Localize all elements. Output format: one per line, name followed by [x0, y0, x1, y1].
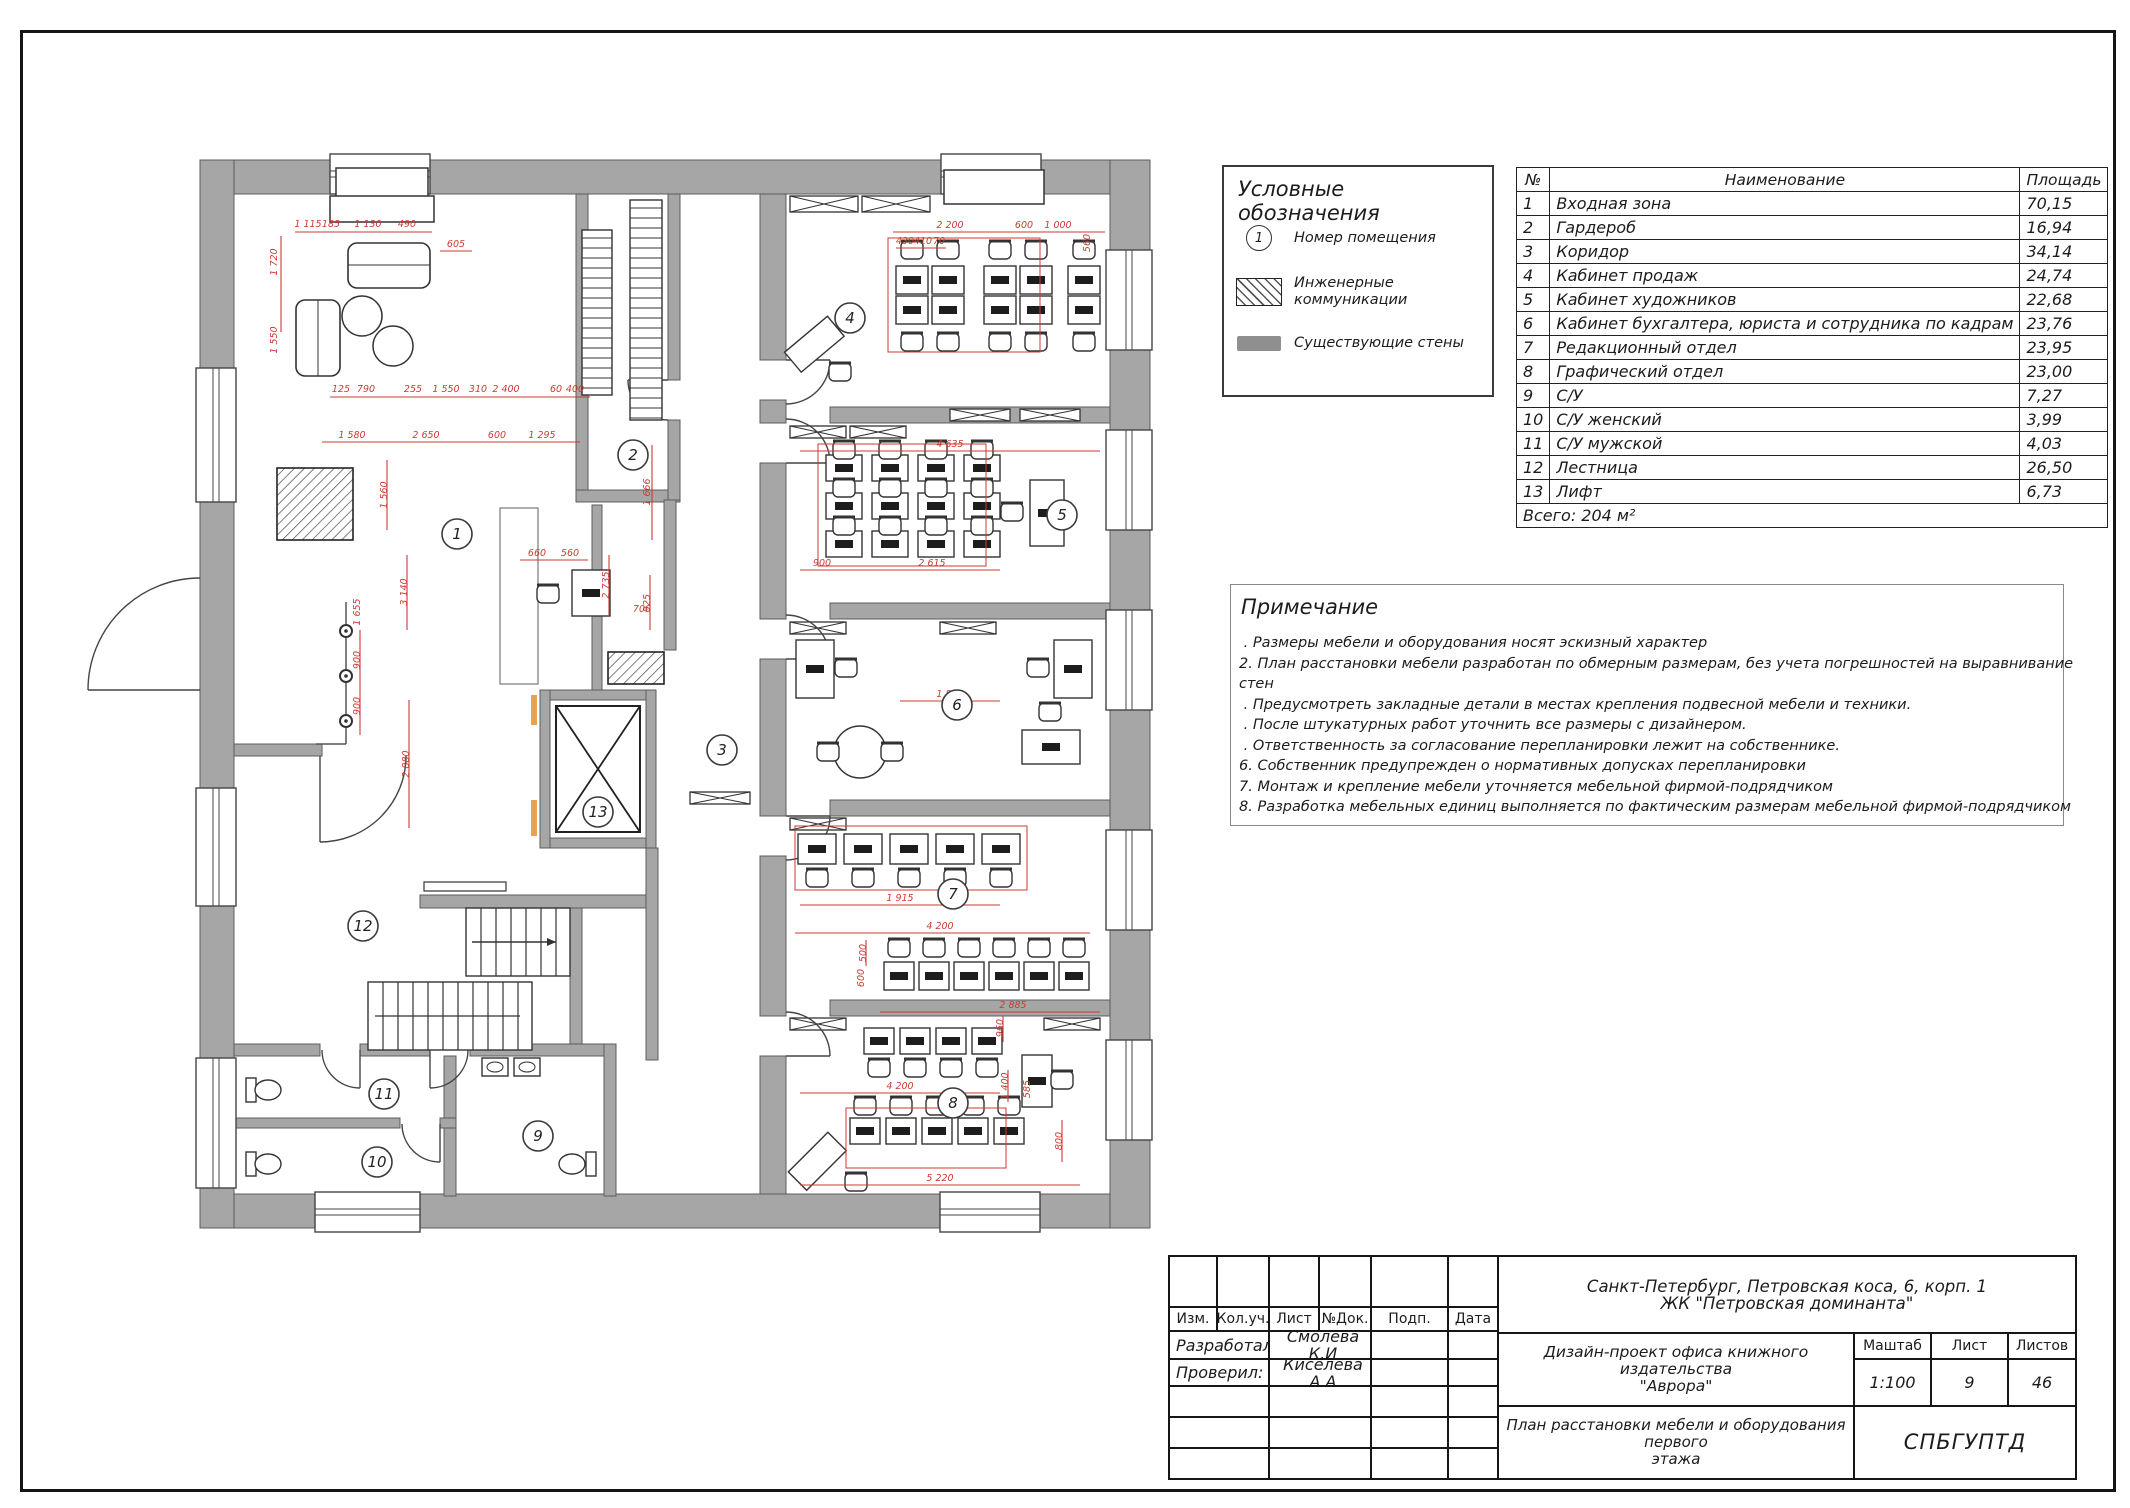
rooms-total: Всего: 204 м²	[1517, 504, 2108, 528]
table-row: 11С/У мужской4,03	[1517, 432, 2108, 456]
note-line: 7. Монтаж и крепление мебели уточняется …	[1239, 777, 2063, 798]
dimension-label: 490	[398, 219, 416, 230]
tb-blank	[1168, 1255, 1218, 1308]
dimension-label: 1 560	[379, 481, 390, 508]
table-row: 12Лестница26,50	[1517, 456, 2108, 480]
tb-checked-name: Киселева А.А	[1268, 1358, 1372, 1387]
svg-text:13: 13	[588, 803, 607, 821]
room-name: С/У	[1550, 384, 2020, 408]
room-name: Кабинет художников	[1550, 288, 2020, 312]
notes-lines: . Размеры мебели и оборудования носят эс…	[1239, 633, 2063, 818]
tb-blank	[1370, 1385, 1449, 1418]
svg-text:5: 5	[1057, 506, 1067, 524]
dimension-label: 585	[1022, 1080, 1033, 1098]
room-number-badge: 7	[938, 879, 968, 909]
dimension-label: 1 295	[528, 430, 555, 441]
dimension-label: 2 885	[999, 1000, 1026, 1011]
note-line: . Предусмотреть закладные детали в места…	[1239, 695, 2063, 716]
room-name: Лестница	[1550, 456, 2020, 480]
room-area: 34,14	[2020, 240, 2108, 264]
col-header-number: №	[1517, 168, 1550, 192]
room-name: С/У женский	[1550, 408, 2020, 432]
table-row: 8Графический отдел23,00	[1517, 360, 2108, 384]
tb-col-data: Дата	[1447, 1306, 1499, 1332]
tb-blank	[1370, 1416, 1449, 1449]
dimension-label: 1 115	[294, 219, 321, 230]
room-name: Лифт	[1550, 480, 2020, 504]
tb-blank	[1370, 1255, 1449, 1308]
dimension-label: 1 720	[269, 248, 280, 275]
table-row: 2Гардероб16,94	[1517, 216, 2108, 240]
dimension-label: 1 580	[338, 430, 365, 441]
room-number: 3	[1517, 240, 1550, 264]
room-number-badge: 2	[618, 440, 648, 470]
room-number-badge: 11	[369, 1079, 399, 1109]
dimension-label: 700	[633, 604, 651, 615]
tb-sheets-value: 46	[2007, 1358, 2077, 1407]
table-row: 6Кабинет бухгалтера, юриста и сотрудника…	[1517, 312, 2108, 336]
svg-text:9: 9	[533, 1127, 543, 1145]
hatch-icon	[1236, 278, 1282, 306]
dimension-label: 800	[1054, 1132, 1065, 1150]
dimension-label: 900	[352, 697, 363, 715]
room-name: Графический отдел	[1550, 360, 2020, 384]
svg-text:8: 8	[948, 1094, 958, 1112]
tb-blank	[1447, 1447, 1499, 1480]
dimension-label: 2 880	[401, 750, 412, 777]
room-number-badge: 3	[707, 735, 737, 765]
legend-item-walls: Существующие стены	[1224, 335, 1492, 352]
svg-text:3: 3	[717, 741, 727, 759]
tb-blank	[1268, 1255, 1320, 1308]
room-area: 24,74	[2020, 264, 2108, 288]
tb-checked-label: Проверил:	[1168, 1358, 1270, 1387]
dimension-label: 4 200	[886, 1081, 913, 1092]
dimension-label: 600	[1015, 220, 1033, 231]
room-name: С/У мужской	[1550, 432, 2020, 456]
note-line: стен	[1239, 674, 2063, 695]
tb-sheets-label: Листов	[2007, 1332, 2077, 1360]
dimension-label: 2 200	[936, 220, 963, 231]
room-name: Гардероб	[1550, 216, 2020, 240]
dimension-label: 310	[469, 384, 487, 395]
room-name: Входная зона	[1550, 192, 2020, 216]
dimension-label: 3 140	[399, 578, 410, 605]
tb-blank	[1168, 1416, 1270, 1449]
note-line: . Размеры мебели и оборудования носят эс…	[1239, 633, 2063, 654]
svg-text:7: 7	[948, 885, 958, 903]
dimension-label: 2 650	[412, 430, 439, 441]
room-number: 5	[1517, 288, 1550, 312]
tb-blank	[1447, 1385, 1499, 1418]
dimension-label: 1 130	[354, 219, 381, 230]
dimension-label: 560	[561, 548, 579, 559]
note-line: . Ответственность за согласование перепл…	[1239, 736, 2063, 757]
rooms-table-header-row: № Наименование Площадь	[1517, 168, 2108, 192]
drawing-sheet: 1 1151851 1304906051 7201 5501257902551 …	[0, 0, 2130, 1508]
svg-text:11: 11	[374, 1085, 393, 1103]
room-area: 7,27	[2020, 384, 2108, 408]
legend-box: Условные обозначения 1 Номер помещения И…	[1222, 165, 1494, 397]
table-row: 10С/У женский3,99	[1517, 408, 2108, 432]
tb-address-line1: Санкт-Петербург, Петровская коса, 6, кор…	[1587, 1278, 1987, 1295]
room-name: Коридор	[1550, 240, 2020, 264]
note-line: 2. План расстановки мебели разработан по…	[1239, 654, 2063, 675]
table-row: 5Кабинет художников22,68	[1517, 288, 2108, 312]
tb-scale-value: 1:100	[1853, 1358, 1932, 1407]
tb-drawing-title-line2: этажа	[1652, 1451, 1701, 1468]
dimension-label: 4 200	[926, 921, 953, 932]
dimension-label: 60	[550, 384, 562, 395]
dimension-label: 70	[933, 236, 945, 247]
dimension-label: 1 655	[352, 598, 363, 625]
room-number: 4	[1517, 264, 1550, 288]
room-number: 2	[1517, 216, 1550, 240]
tb-blank	[1370, 1447, 1449, 1480]
tb-blank	[1216, 1255, 1270, 1308]
tb-organization: СПБГУПТД	[1853, 1405, 2077, 1480]
dimension-label: 660	[528, 548, 546, 559]
dimension-label: 1 400	[1000, 1072, 1011, 1099]
room-number: 13	[1517, 480, 1550, 504]
svg-text:4: 4	[845, 309, 855, 327]
rooms-table-total-row: Всего: 204 м²	[1517, 504, 2108, 528]
svg-text:2: 2	[628, 446, 638, 464]
tb-project-line1: Дизайн-проект офиса книжного издательств…	[1499, 1344, 1853, 1378]
dimension-label: 2 615	[918, 558, 945, 569]
dimension-label: 500	[858, 944, 869, 962]
dimension-label: 605	[447, 239, 465, 250]
tb-col-podp: Подп.	[1370, 1306, 1449, 1332]
tb-blank	[1447, 1416, 1499, 1449]
legend-item-label: Номер помещения	[1294, 230, 1436, 247]
dimension-label: 410	[914, 236, 932, 247]
dimension-label: 430	[896, 236, 914, 247]
table-row: 7Редакционный отдел23,95	[1517, 336, 2108, 360]
room-area: 22,68	[2020, 288, 2108, 312]
tb-project-line2: "Аврора"	[1640, 1378, 1713, 1395]
legend-item-room-number: 1 Номер помещения	[1224, 225, 1492, 251]
room-number: 1	[1517, 192, 1550, 216]
tb-blank	[1447, 1255, 1499, 1308]
room-area: 23,00	[2020, 360, 2108, 384]
room-area: 16,94	[2020, 216, 2108, 240]
tb-drawing-title: План расстановки мебели и оборудования п…	[1497, 1405, 1855, 1480]
tb-address: Санкт-Петербург, Петровская коса, 6, кор…	[1497, 1255, 2077, 1334]
room-area: 26,50	[2020, 456, 2108, 480]
room-number-badge: 4	[835, 303, 865, 333]
tb-blank	[1268, 1385, 1372, 1418]
title-block: Изм. Кол.уч. Лист №Док. Подп. Дата Разра…	[1168, 1255, 2077, 1480]
dimension-label: 5 220	[926, 1173, 953, 1184]
dimension-label: 900	[352, 651, 363, 669]
table-row: 1Входная зона70,15	[1517, 192, 2108, 216]
room-number-badge: 12	[348, 911, 378, 941]
legend-title: Условные обозначения	[1238, 177, 1492, 225]
tb-blank	[1168, 1385, 1270, 1418]
room-number: 12	[1517, 456, 1550, 480]
room-area: 23,95	[2020, 336, 2108, 360]
room-name: Кабинет бухгалтера, юриста и сотрудника …	[1550, 312, 2020, 336]
legend-item-label2: коммуникации	[1294, 292, 1407, 308]
dimension-label: 2 735	[601, 571, 612, 598]
dimension-label: 560	[1082, 234, 1093, 252]
dimension-label: 790	[357, 384, 375, 395]
dimension-label: 1 000	[1044, 220, 1071, 231]
dimension-label: 1 915	[886, 893, 913, 904]
dimension-label: 1 550	[269, 326, 280, 353]
dimension-label: 600	[488, 430, 506, 441]
tb-sheet-value: 9	[1930, 1358, 2009, 1407]
room-number-badge: 13	[583, 797, 613, 827]
dimension-label: 255	[404, 384, 422, 395]
room-number-badge: 5	[1047, 500, 1077, 530]
room-number-badge: 8	[938, 1088, 968, 1118]
dimension-label: 2 400	[492, 384, 519, 395]
room-number-badge: 1	[442, 519, 472, 549]
dimension-label: 1 666	[642, 478, 653, 505]
room-number-badge: 6	[942, 690, 972, 720]
rooms-table: № Наименование Площадь 1Входная зона70,1…	[1516, 167, 2108, 528]
tb-col-izm: Изм.	[1168, 1306, 1218, 1332]
col-header-name: Наименование	[1550, 168, 2020, 192]
dimension-label: 125	[332, 384, 350, 395]
room-area: 3,99	[2020, 408, 2108, 432]
tb-blank	[1447, 1358, 1499, 1387]
room-area: 6,73	[2020, 480, 2108, 504]
tb-blank	[1168, 1447, 1270, 1480]
room-area: 4,03	[2020, 432, 2108, 456]
svg-text:12: 12	[353, 917, 372, 935]
room-number-badge: 10	[362, 1147, 392, 1177]
room-number: 10	[1517, 408, 1550, 432]
table-row: 13Лифт6,73	[1517, 480, 2108, 504]
tb-sheet-label: Лист	[1930, 1332, 2009, 1360]
room-number: 9	[1517, 384, 1550, 408]
dimension-label: 900	[813, 558, 831, 569]
legend-item-engineering: Инженерные коммуникации	[1224, 275, 1492, 309]
dimension-label: 960	[995, 1019, 1006, 1037]
tb-blank	[1268, 1447, 1372, 1480]
svg-text:1: 1	[452, 525, 462, 543]
note-line: 8. Разработка мебельных единиц выполняет…	[1239, 797, 2063, 818]
tb-col-koluch: Кол.уч.	[1216, 1306, 1270, 1332]
legend-item-label: Инженерные	[1294, 275, 1394, 291]
dimension-label: 600	[856, 969, 867, 987]
legend-item-label: Существующие стены	[1294, 335, 1464, 352]
room-number: 8	[1517, 360, 1550, 384]
table-row: 4Кабинет продаж24,74	[1517, 264, 2108, 288]
tb-address-line2: ЖК "Петровская доминанта"	[1661, 1295, 1914, 1312]
dimension-label: 1 550	[432, 384, 459, 395]
tb-project: Дизайн-проект офиса книжного издательств…	[1497, 1332, 1855, 1407]
table-row: 9С/У7,27	[1517, 384, 2108, 408]
tb-blank	[1268, 1416, 1372, 1449]
room-number-icon: 1	[1246, 225, 1272, 251]
dimension-label: 185	[322, 219, 340, 230]
notes-title: Примечание	[1241, 595, 2063, 619]
notes-box: Примечание . Размеры мебели и оборудован…	[1230, 584, 2064, 826]
dimension-label: 400	[566, 384, 584, 395]
room-number: 6	[1517, 312, 1550, 336]
tb-blank	[1370, 1330, 1449, 1360]
tb-blank	[1318, 1255, 1372, 1308]
svg-text:10: 10	[367, 1153, 386, 1171]
room-number: 7	[1517, 336, 1550, 360]
room-area: 70,15	[2020, 192, 2108, 216]
tb-scale-label: Маштаб	[1853, 1332, 1932, 1360]
table-row: 3Коридор34,14	[1517, 240, 2108, 264]
note-line: . После штукатурных работ уточнить все р…	[1239, 715, 2063, 736]
tb-developed-label: Разработал:	[1168, 1330, 1270, 1360]
wall-icon	[1237, 336, 1281, 351]
room-number-badge: 9	[523, 1121, 553, 1151]
note-line: 6. Собственник предупрежден о нормативны…	[1239, 756, 2063, 777]
svg-text:6: 6	[952, 696, 962, 714]
room-name: Редакционный отдел	[1550, 336, 2020, 360]
room-number: 11	[1517, 432, 1550, 456]
room-name: Кабинет продаж	[1550, 264, 2020, 288]
room-area: 23,76	[2020, 312, 2108, 336]
tb-blank	[1447, 1330, 1499, 1360]
tb-blank	[1370, 1358, 1449, 1387]
tb-drawing-title-line1: План расстановки мебели и оборудования п…	[1499, 1417, 1853, 1451]
col-header-area: Площадь	[2020, 168, 2108, 192]
dimension-label: 4 635	[936, 439, 963, 450]
